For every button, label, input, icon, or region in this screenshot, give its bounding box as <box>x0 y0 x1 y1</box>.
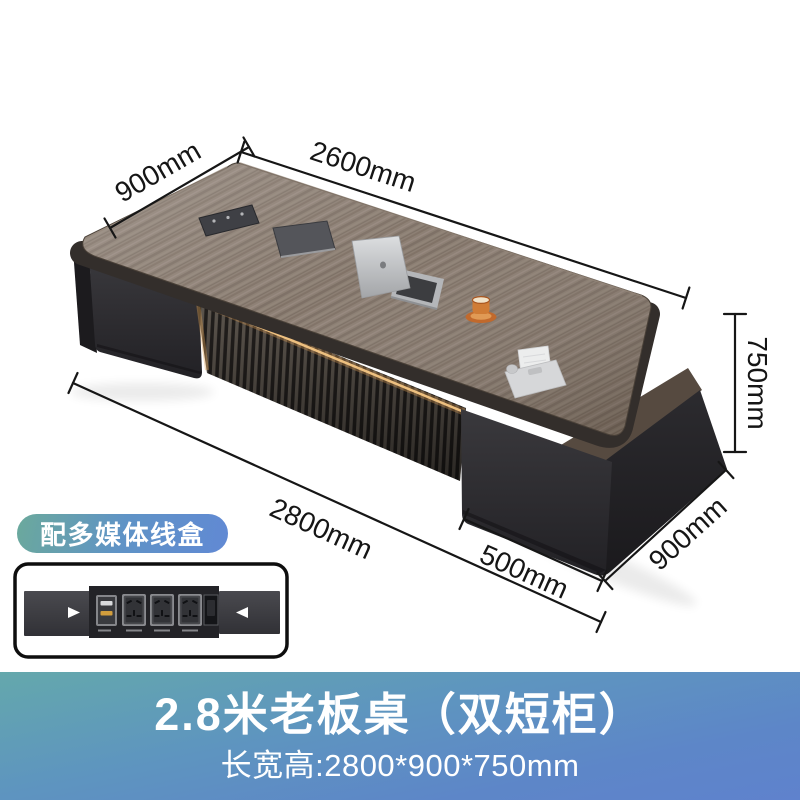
socket-3 <box>178 594 202 626</box>
info-banner: 2.8米老板桌（双短柜） 长宽高:2800*900*750mm <box>0 672 800 800</box>
socket-1 <box>122 594 146 626</box>
strip-left-slider <box>24 591 91 636</box>
socket-2 <box>150 594 174 626</box>
usb-module <box>96 595 117 626</box>
multimedia-box-inset <box>15 564 287 657</box>
dimension-label-height: 750mm <box>741 336 773 429</box>
product-title: 2.8米老板桌（双短柜） <box>154 689 646 741</box>
apple-logo-icon <box>380 262 386 269</box>
multimedia-badge: 配多媒体线盒 <box>17 514 228 553</box>
power-strip <box>24 586 280 638</box>
product-size: 长宽高:2800*900*750mm <box>221 748 580 784</box>
strip-right-slider <box>219 591 280 634</box>
product-image: 900mm 2600mm 750mm 2800mm 500mm 900mm 配多… <box>0 0 800 800</box>
blank-module <box>204 595 218 625</box>
